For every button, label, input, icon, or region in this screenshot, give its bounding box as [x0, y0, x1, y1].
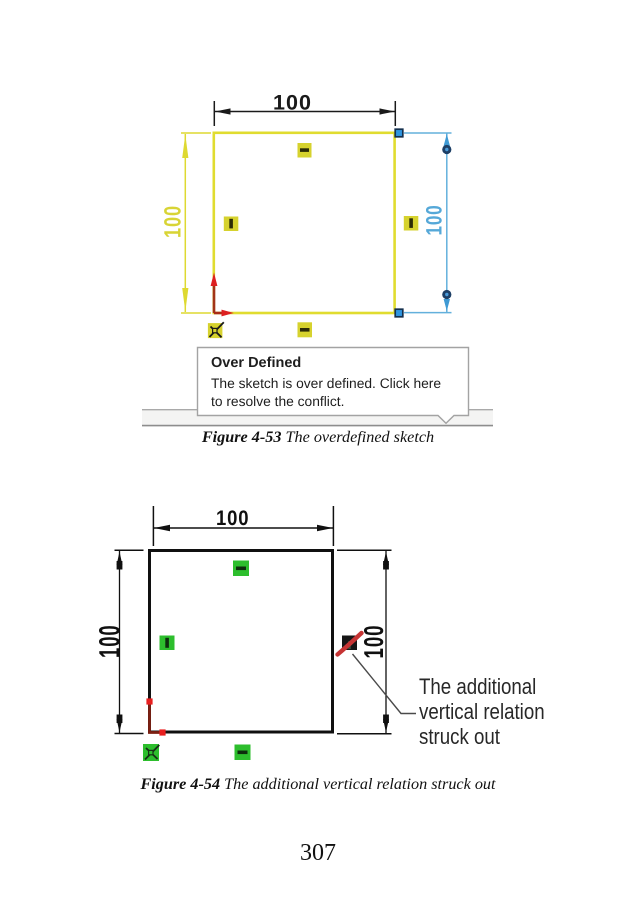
svg-text:100: 100	[360, 625, 390, 659]
svg-text:Over Defined: Over Defined	[211, 355, 301, 371]
svg-text:The sketch is over defined. Cl: The sketch is over defined. Click here	[211, 376, 441, 391]
svg-text:100: 100	[422, 205, 446, 236]
svg-text:100: 100	[273, 92, 312, 115]
svg-text:to resolve the conflict.: to resolve the conflict.	[211, 394, 344, 409]
svg-text:100: 100	[94, 624, 126, 658]
svg-text:100: 100	[216, 507, 250, 530]
svg-text:100: 100	[160, 205, 186, 238]
